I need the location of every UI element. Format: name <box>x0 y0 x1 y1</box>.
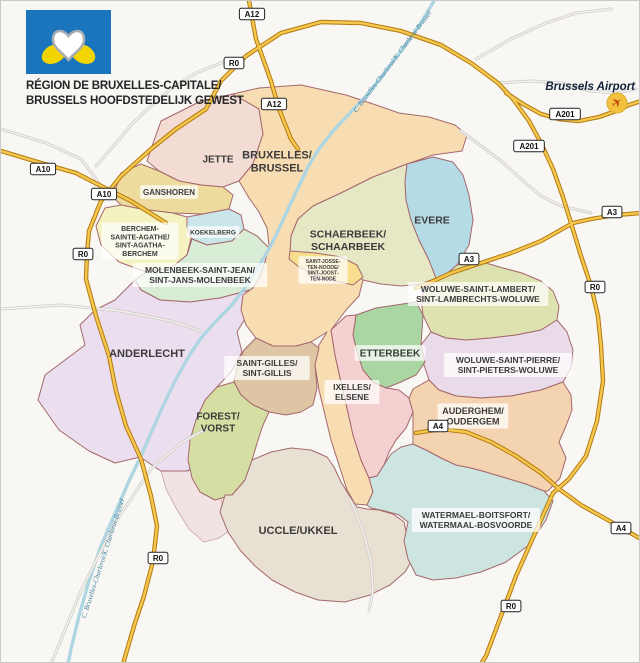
label-ixelles: IXELLES/ELSENE <box>333 382 371 402</box>
map-title: RÉGION DE BRUXELLES-CAPITALE/ BRUSSELS H… <box>26 79 244 109</box>
label-schaerbeek: SCHAERBEEK/SCHAARBEEK <box>310 228 387 252</box>
brussels-region-logo <box>26 10 111 74</box>
road-shield-text-6: R0 <box>506 602 517 611</box>
label-bruxelles: BRUXELLES/BRUSSEL <box>242 149 312 174</box>
road-shield-text-11: A3 <box>607 208 618 217</box>
label-saint-gilles: SAINT-GILLES/SINT-GILLIS <box>237 358 299 378</box>
label-woluwe-saint-pierre: WOLUWE-SAINT-PIERRE/SINT-PIETERS-WOLUWE <box>456 355 561 375</box>
road-shield-text-13: A4 <box>433 422 444 431</box>
airport-label: Brussels Airport <box>545 81 636 93</box>
road-shield-text-5: R0 <box>153 554 164 563</box>
label-forest: FOREST/VORST <box>196 412 240 435</box>
label-koekelberg: KOEKELBERG <box>190 229 236 236</box>
map-page: C. Bruxelles-Charleroi/K. Charleroi-Brus… <box>0 0 640 663</box>
road-shield-text-1: A12 <box>267 100 282 109</box>
road-shield-text-3: R0 <box>78 250 89 259</box>
label-auderghem: AUDERGHEM/OUDERGEM <box>442 406 504 427</box>
road-shield-text-14: A4 <box>616 524 627 533</box>
label-uccle: UCCLE/UKKEL <box>259 525 338 537</box>
map-title-line2: BRUSSELS HOOFDSTEDELIJK GEWEST <box>26 94 244 109</box>
map-title-line1: RÉGION DE BRUXELLES-CAPITALE/ <box>26 79 244 94</box>
road-shield-text-9: A201 <box>555 110 575 119</box>
secondary-road-s5 <box>476 9 611 59</box>
label-evere: EVERE <box>414 215 450 227</box>
label-jette: JETTE <box>202 155 233 166</box>
label-saint-josse-ten-noode: SAINT-JOSSE-TEN-NOODE/SINT-JOOST-TEN-NOD… <box>306 259 341 283</box>
label-anderlecht: ANDERLECHT <box>109 348 185 360</box>
road-shield-text-10: A201 <box>519 142 539 151</box>
label-woluwe-saint-lambert: WOLUWE-SAINT-LAMBERT/SINT-LAMBRECHTS-WOL… <box>416 284 540 304</box>
canal-label-1: C. Bruxelles-Charleroi/K. Charleroi-Brus… <box>80 498 126 619</box>
road-shield-text-4: R0 <box>590 283 601 292</box>
road-shield-text-12: A3 <box>464 255 475 264</box>
label-watermael-boitsfort: WATERMAEL-BOITSFORT/WATERMAAL-BOSVOORDE <box>420 510 533 530</box>
label-molenbeek-saint-jean: MOLENBEEK-SAINT-JEAN/SINT-JANS-MOLENBEEK <box>145 265 256 285</box>
road-shield-text-0: A12 <box>245 10 260 19</box>
road-shield-text-2: R0 <box>229 59 240 68</box>
secondary-road-core-s5 <box>476 9 611 59</box>
label-ganshoren: GANSHOREN <box>143 188 195 197</box>
road-shield-text-7: A10 <box>36 165 51 174</box>
label-etterbeek: ETTERBEEK <box>360 349 421 360</box>
road-shield-text-8: A10 <box>97 190 112 199</box>
